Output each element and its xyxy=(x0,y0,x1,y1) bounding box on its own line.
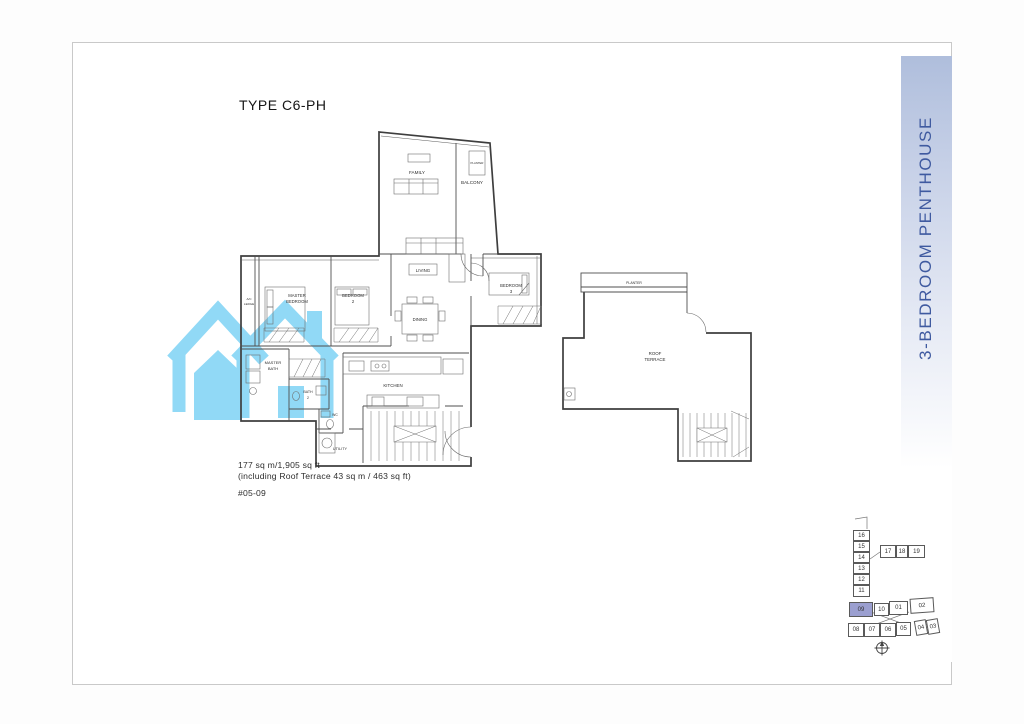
room-label-bedroom2: BEDROOM xyxy=(342,293,364,298)
room-label-roof-planter: PLANTER xyxy=(626,281,642,285)
room-label-bath2: BATH xyxy=(303,390,313,394)
locator-unit-09-highlighted: 09 xyxy=(849,602,873,617)
locator-unit-01: 01 xyxy=(889,601,908,615)
floor-plan-drawing: FAMILY BALCONY PLANTER LIVING DINING BED… xyxy=(231,121,776,483)
room-label-family: FAMILY xyxy=(409,170,425,175)
locator-unit-14: 14 xyxy=(853,552,870,563)
category-label: 3-BEDROOM PENTHOUSE xyxy=(904,103,948,373)
area-summary: 177 sq m/1,905 sq ft (including Roof Ter… xyxy=(238,460,411,499)
svg-text:LEDGE: LEDGE xyxy=(244,302,254,306)
area-line2: (including Roof Terrace 43 sq m / 463 sq… xyxy=(238,471,411,482)
room-label-kitchen: KITCHEN xyxy=(383,383,402,388)
room-label-living: LIVING xyxy=(416,268,431,273)
room-label-master-bedroom: MASTER xyxy=(288,293,305,298)
locator-unit-07: 07 xyxy=(864,623,880,637)
locator-unit-18: 18 xyxy=(896,545,908,558)
locator-unit-12: 12 xyxy=(853,574,870,585)
room-label-master-bath: MASTER xyxy=(265,360,282,365)
unit-locator-map: 16 15 14 13 12 11 17 18 19 09 10 01 02 0… xyxy=(841,516,951,666)
room-label-ac-ledge: A/C xyxy=(246,297,252,301)
room-label-roof-terrace: ROOF xyxy=(649,351,662,356)
locator-unit-05: 05 xyxy=(896,622,911,636)
svg-text:BEDROOM: BEDROOM xyxy=(286,299,308,304)
locator-unit-15: 15 xyxy=(853,541,870,552)
room-label-dining: DINING xyxy=(413,317,428,322)
svg-text:3: 3 xyxy=(510,289,513,294)
svg-text:2: 2 xyxy=(307,396,309,400)
svg-text:TERRACE: TERRACE xyxy=(645,357,666,362)
locator-unit-11: 11 xyxy=(853,585,870,597)
locator-unit-17: 17 xyxy=(880,545,896,558)
room-label-bedroom3: BEDROOM xyxy=(500,283,522,288)
room-label-wc: WC xyxy=(332,413,338,417)
room-label-planter: PLANTER xyxy=(471,161,484,165)
locator-unit-19: 19 xyxy=(908,545,925,558)
locator-unit-10: 10 xyxy=(874,603,889,616)
brochure-page: TYPE C6-PH 3-BEDROOM PENTHOUSE xyxy=(72,42,952,685)
unit-number: #05-09 xyxy=(238,488,411,499)
page-title: TYPE C6-PH xyxy=(239,97,326,113)
locator-unit-16: 16 xyxy=(853,530,870,541)
room-label-utility: UTILITY xyxy=(333,447,348,451)
svg-text:2: 2 xyxy=(352,299,355,304)
north-compass-icon xyxy=(874,640,890,656)
area-line1: 177 sq m/1,905 sq ft xyxy=(238,460,411,471)
room-label-balcony: BALCONY xyxy=(461,180,483,185)
locator-unit-13: 13 xyxy=(853,563,870,574)
locator-unit-08: 08 xyxy=(848,623,864,637)
locator-unit-06: 06 xyxy=(880,623,896,637)
locator-unit-02: 02 xyxy=(910,597,935,614)
locator-unit-03: 03 xyxy=(926,618,940,635)
svg-text:BATH: BATH xyxy=(268,366,278,371)
